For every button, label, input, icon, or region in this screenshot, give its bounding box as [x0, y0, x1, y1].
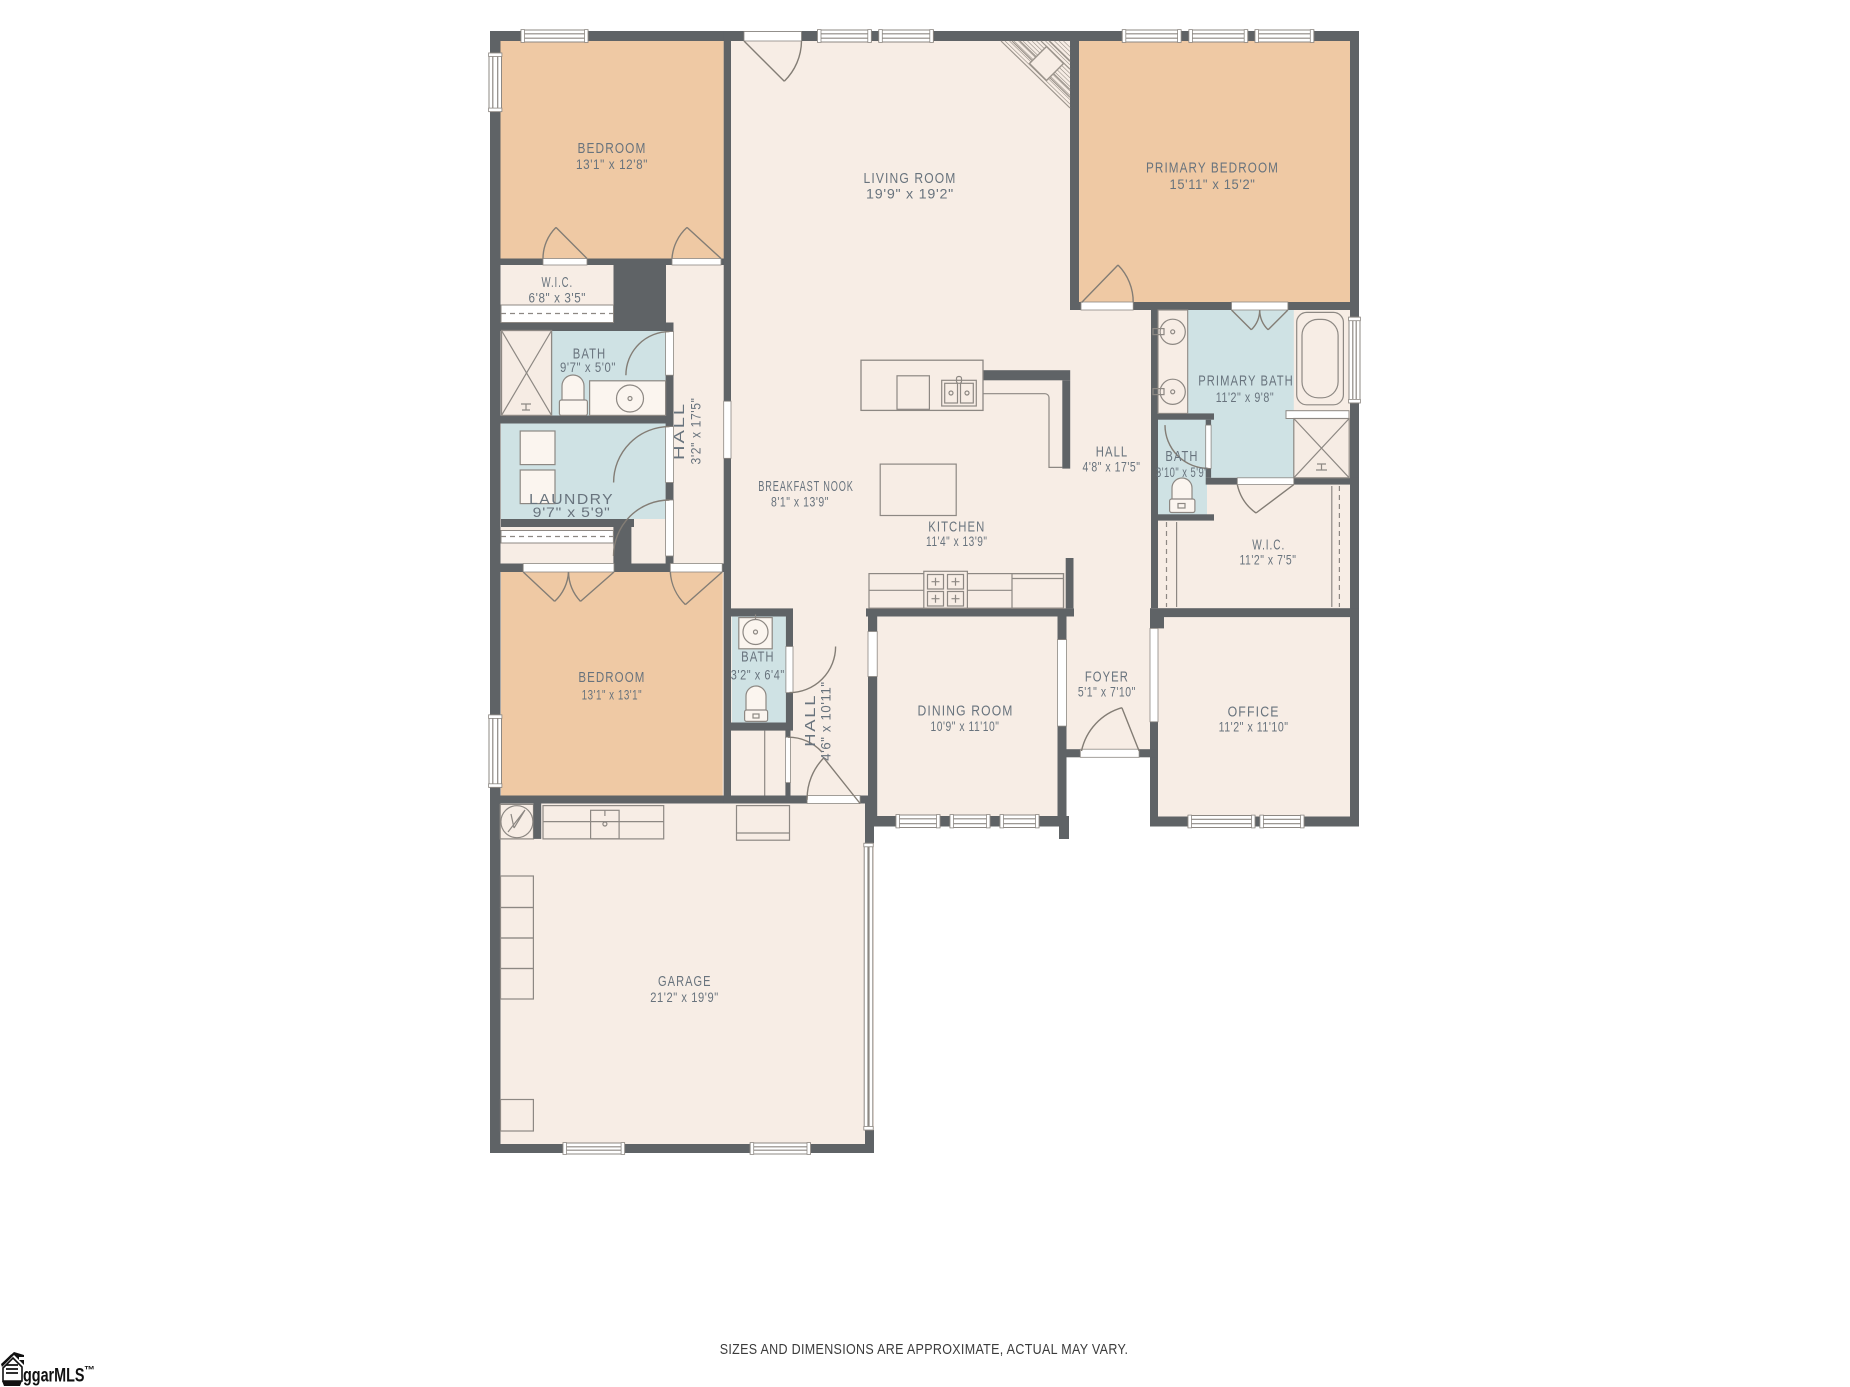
svg-text:FOYER: FOYER [1085, 669, 1129, 686]
svg-text:HALL: HALL [1096, 444, 1129, 461]
svg-text:6'8" x 3'5": 6'8" x 3'5" [529, 291, 587, 306]
svg-text:BEDROOM: BEDROOM [578, 140, 647, 157]
svg-text:11'2" x 7'5": 11'2" x 7'5" [1240, 553, 1297, 568]
svg-text:11'2" x 11'10": 11'2" x 11'10" [1219, 720, 1289, 735]
svg-text:BREAKFAST NOOK: BREAKFAST NOOK [758, 478, 854, 495]
svg-text:GARAGE: GARAGE [658, 973, 712, 990]
svg-text:11'2" x 9'8": 11'2" x 9'8" [1216, 390, 1275, 405]
svg-text:ggarMLS: ggarMLS [23, 1366, 85, 1387]
svg-text:9'7" x 5'0": 9'7" x 5'0" [560, 360, 616, 375]
svg-text:BATH: BATH [741, 649, 775, 666]
svg-text:PRIMARY BEDROOM: PRIMARY BEDROOM [1146, 160, 1279, 177]
svg-text:11'4" x 13'9": 11'4" x 13'9" [926, 534, 988, 549]
svg-text:19'9" x 19'2": 19'9" x 19'2" [866, 187, 954, 202]
svg-text:DINING ROOM: DINING ROOM [918, 703, 1014, 720]
svg-text:10'9" x 11'10": 10'9" x 11'10" [931, 719, 1000, 734]
svg-text:OFFICE: OFFICE [1228, 704, 1280, 721]
svg-text:SIZES AND DIMENSIONS ARE APPRO: SIZES AND DIMENSIONS ARE APPROXIMATE, AC… [720, 1341, 1129, 1358]
svg-text:3'2" x 6'4": 3'2" x 6'4" [731, 668, 785, 683]
svg-text:HALL: HALL [671, 402, 688, 460]
svg-text:W.I.C.: W.I.C. [542, 274, 574, 291]
svg-text:3'10" x 5'9": 3'10" x 5'9" [1156, 465, 1208, 480]
svg-text:8'1" x 13'9": 8'1" x 13'9" [771, 495, 829, 510]
svg-text:™: ™ [84, 1365, 95, 1377]
svg-text:13'1" x 12'8": 13'1" x 12'8" [576, 157, 648, 172]
svg-text:PRIMARY BATH: PRIMARY BATH [1198, 373, 1294, 390]
svg-text:13'1" x 13'1": 13'1" x 13'1" [582, 688, 643, 703]
svg-text:4'6" x 10'11": 4'6" x 10'11" [819, 681, 834, 761]
svg-text:HALL: HALL [802, 694, 819, 747]
svg-text:21'2" x 19'9": 21'2" x 19'9" [650, 990, 719, 1005]
svg-text:5'1" x 7'10": 5'1" x 7'10" [1078, 685, 1136, 700]
svg-text:BATH: BATH [1165, 448, 1198, 465]
svg-text:9'7" x 5'9": 9'7" x 5'9" [533, 505, 611, 520]
svg-text:BEDROOM: BEDROOM [578, 669, 645, 686]
svg-text:W.I.C.: W.I.C. [1252, 537, 1285, 554]
svg-text:15'11" x 15'2": 15'11" x 15'2" [1170, 177, 1256, 192]
svg-text:LIVING ROOM: LIVING ROOM [864, 170, 957, 187]
svg-text:KITCHEN: KITCHEN [928, 519, 985, 536]
svg-text:4'8" x 17'5": 4'8" x 17'5" [1083, 460, 1141, 475]
svg-text:3'2" x 17'5": 3'2" x 17'5" [689, 398, 704, 465]
